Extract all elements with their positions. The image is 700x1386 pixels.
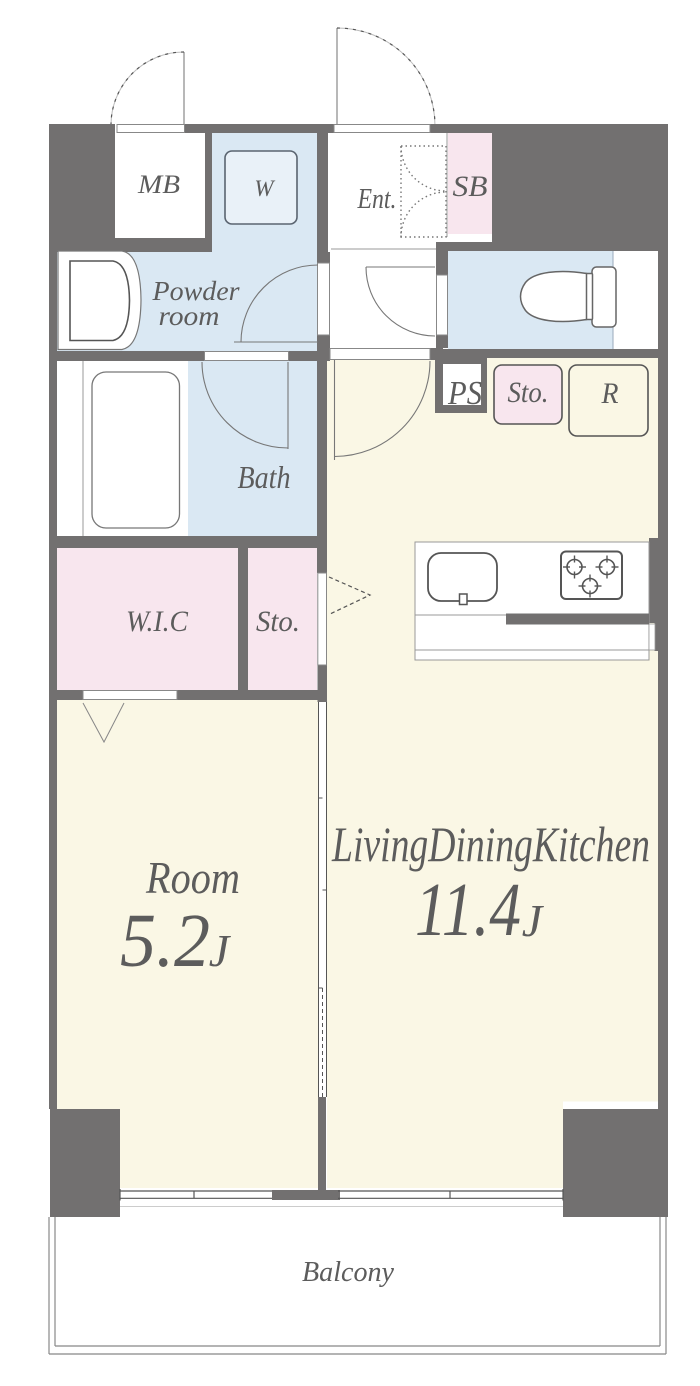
svg-text:J: J [522, 895, 545, 946]
svg-text:J: J [209, 925, 232, 976]
svg-text:Room: Room [145, 853, 240, 903]
svg-text:11.4: 11.4 [415, 868, 521, 952]
svg-text:LivingDiningKitchen: LivingDiningKitchen [331, 816, 650, 872]
svg-text:W.I.C: W.I.C [126, 605, 189, 638]
svg-text:MB: MB [137, 170, 180, 199]
svg-text:SB: SB [453, 170, 488, 203]
svg-text:R: R [601, 377, 619, 410]
svg-text:room: room [159, 301, 220, 331]
svg-text:Ent.: Ent. [357, 184, 397, 215]
svg-text:Sto.: Sto. [256, 605, 300, 638]
svg-text:5.2: 5.2 [120, 899, 210, 983]
svg-text:Sto.: Sto. [508, 376, 549, 409]
svg-text:Balcony: Balcony [302, 1257, 395, 1288]
svg-text:W: W [254, 176, 275, 201]
svg-text:Bath: Bath [238, 459, 291, 495]
svg-text:PS: PS [447, 375, 482, 412]
